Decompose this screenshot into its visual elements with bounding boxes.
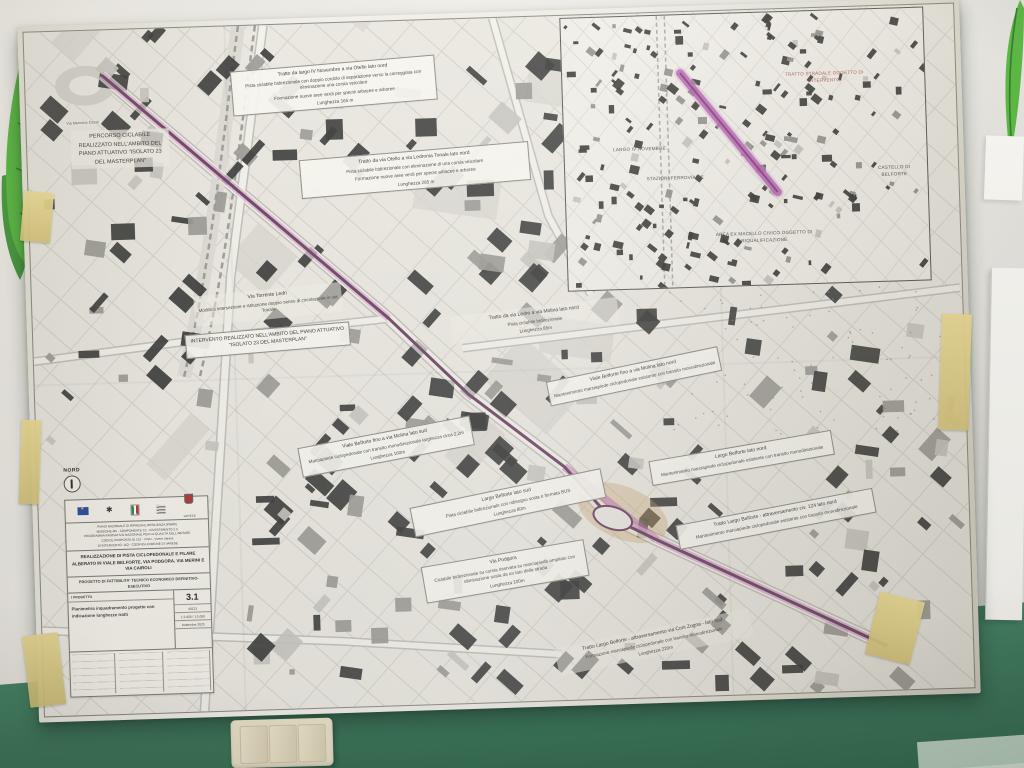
inset-map: LARGO IV NOVEMBRETRATTO STRADALE OGGETTO… xyxy=(559,7,931,292)
north-label: NORD xyxy=(63,467,80,474)
main-map: Tratto da largo IV Novembre a via Otello… xyxy=(22,3,975,718)
inset-label: CASTELLO DI BELFORTE xyxy=(865,164,923,179)
masking-tape xyxy=(938,314,972,431)
varese-logo-icon: VARESE xyxy=(183,494,196,522)
title-block: ✱ VARESE PIANO NAZIONALE DI RIPRESA E RE… xyxy=(64,495,214,698)
masking-tape xyxy=(20,191,54,243)
signature-area xyxy=(70,648,213,696)
map-poster: Tratto da largo IV Novembre a via Otello… xyxy=(17,0,980,723)
drawing-title: Planimetria inquadramento progetto con i… xyxy=(68,600,174,624)
light-switch-rocker xyxy=(240,725,269,764)
north-indicator: NORD xyxy=(63,467,81,493)
signature-cell xyxy=(119,652,164,693)
light-switch-rocker xyxy=(298,724,327,763)
region-logo-icon xyxy=(157,504,166,513)
light-switch-rocker xyxy=(269,725,298,764)
light-switch xyxy=(230,718,333,768)
italy-flag-logo-icon xyxy=(130,504,139,515)
wall-paper-right xyxy=(985,268,1024,621)
photo-scene: Tratto da largo IV Novembre a via Otello… xyxy=(0,0,1024,768)
sheet-date: Settembre 2023 xyxy=(175,620,211,629)
pnrr-program-text: PIANO NAZIONALE DI RIPRESA E RESILIENZA … xyxy=(66,519,209,552)
signature-cell xyxy=(167,650,212,691)
percorso-label: PERCORSO CICLABILE REALIZZATO NELL'AMBIT… xyxy=(71,128,170,169)
logo-row: ✱ VARESE xyxy=(65,496,208,523)
varese-logo-label: VARESE xyxy=(183,514,195,518)
wall-card-right xyxy=(984,135,1024,200)
signature-cell xyxy=(72,653,117,694)
compass-icon xyxy=(63,475,81,493)
sheet-number: 3.1 xyxy=(174,589,210,605)
masking-tape xyxy=(19,420,42,505)
eu-flag-logo-icon xyxy=(77,507,88,515)
ministry-star-logo-icon: ✱ xyxy=(106,506,113,514)
